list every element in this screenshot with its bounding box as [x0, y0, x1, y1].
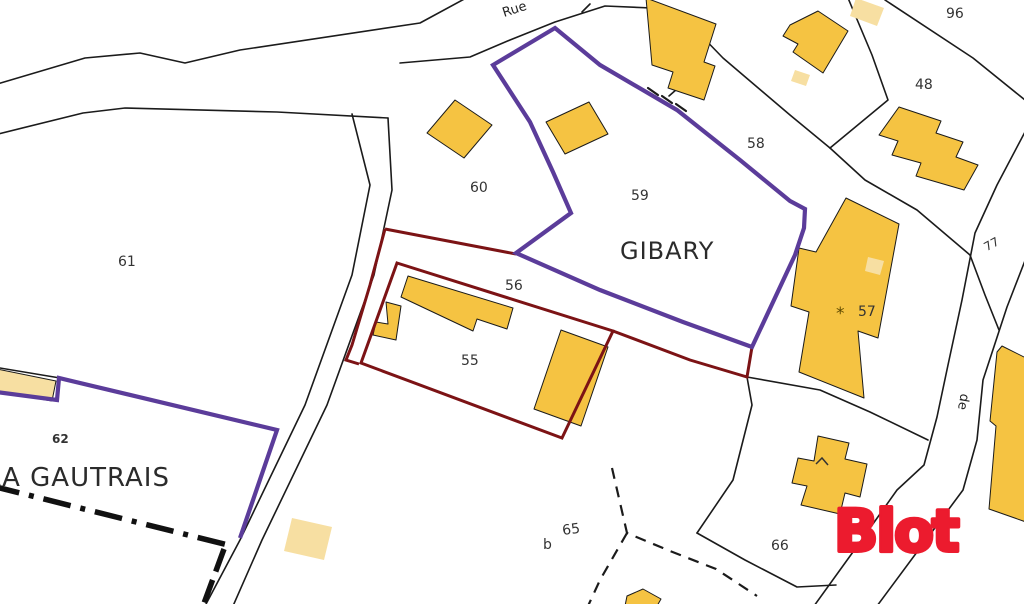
red-left-edge [346, 229, 385, 364]
building-star-mark: * [836, 304, 845, 324]
parcel-label-56: 56 [505, 278, 523, 294]
cadastral-map-svg: 61 60 59 58 96 48 77 56 55 57 * 62 65 b … [0, 0, 1024, 604]
parcel-label-62: 62 [52, 432, 69, 446]
building-parcel-60 [427, 100, 492, 158]
road-label-rue: Rue [501, 0, 529, 21]
building-parcel-57 [791, 198, 899, 398]
red-top-edge [385, 229, 516, 254]
building-parcel-58-right [783, 11, 848, 73]
building-parcel-59 [546, 102, 608, 154]
road-label-de: de [954, 392, 972, 411]
boundary-66-south [697, 533, 836, 587]
boundary-58-96 [830, 0, 888, 148]
building-parcel-55-tall [534, 330, 608, 426]
place-label-gibary: GIBARY [620, 237, 714, 265]
dashed-boundary-65b-left [588, 533, 627, 604]
road-top-south-edge [0, 108, 388, 135]
building-right-edge [989, 346, 1024, 522]
purple-gibary-zone [493, 28, 805, 347]
zone-outline-purple [0, 28, 805, 538]
parcel-label-59: 59 [631, 188, 649, 204]
building-bottom-edge [625, 589, 661, 604]
building-parcel-58-top [646, 0, 716, 100]
blot-logo: Blot [834, 497, 959, 565]
parcel-label-65: 65 [561, 521, 581, 539]
parcel-label-57: 57 [858, 304, 876, 320]
road-top-north-edge [0, 0, 468, 85]
parcel-label-96: 96 [946, 6, 964, 22]
parcel-label-48: 48 [915, 77, 933, 93]
dashed-boundary-65b [612, 468, 757, 596]
parcel-label-55: 55 [461, 353, 479, 369]
parcel-label-65b: b [543, 537, 552, 553]
parcel-label-77: 77 [981, 234, 1001, 254]
building-parcel-48 [879, 107, 978, 190]
annex-parcel-58 [791, 70, 810, 86]
commune-boundary [0, 486, 232, 604]
building-parcel-55-long [401, 276, 513, 331]
annex-bottom-left [284, 518, 332, 560]
parcel-label-58: 58 [747, 136, 765, 152]
parcel-label-60: 60 [470, 180, 488, 196]
purple-west-zone [0, 378, 277, 538]
boundary-65-66 [697, 377, 752, 533]
parcel-label-61: 61 [118, 254, 136, 270]
map-viewport: 61 60 59 58 96 48 77 56 55 57 * 62 65 b … [0, 0, 1024, 604]
boundary-77-west [970, 255, 999, 330]
dashed-boundaries [588, 468, 757, 604]
annex-parcel-96 [850, 0, 884, 26]
parcel-label-66: 66 [771, 538, 789, 554]
place-label-la-gautrais: LA GAUTRAIS [0, 463, 170, 493]
